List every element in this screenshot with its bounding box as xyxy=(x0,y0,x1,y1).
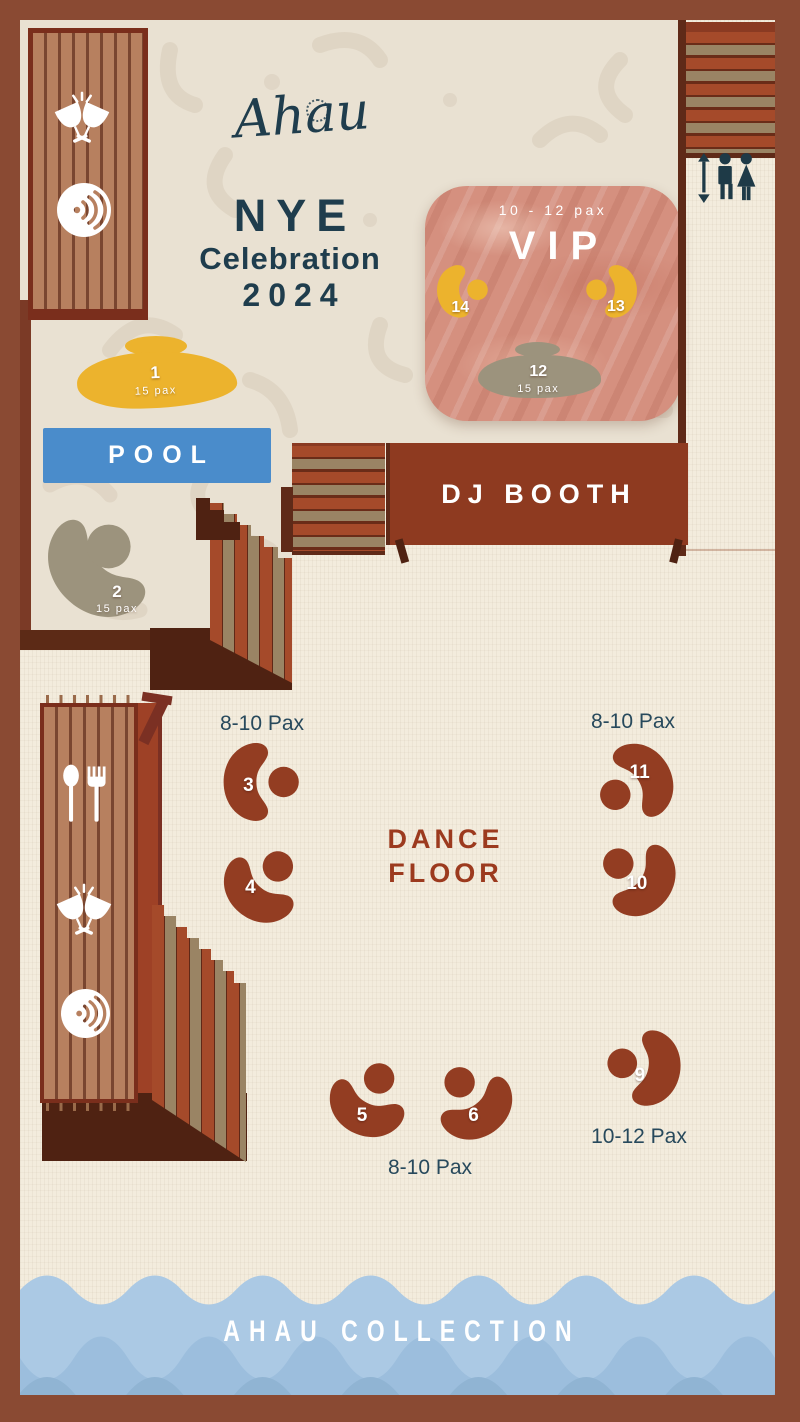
table-number: 4 xyxy=(245,877,256,899)
table-pax: 15 pax xyxy=(96,603,138,615)
stairs-top-right xyxy=(683,22,775,158)
table-number: 14 xyxy=(451,299,469,317)
table-2: 2 15 pax xyxy=(48,502,163,617)
zone-label-tables-3-4: 8-10 Pax xyxy=(187,712,337,736)
zone-label-table-9: 10-12 Pax xyxy=(564,1125,714,1149)
table-pax: 15 pax xyxy=(135,385,177,398)
pool-label: POOL xyxy=(99,441,215,470)
table-14: 14 xyxy=(436,264,490,318)
stairs-dj-booth xyxy=(292,443,385,555)
logo-badge-icon xyxy=(306,99,329,122)
table-number: 9 xyxy=(635,1065,646,1087)
venue-logo: Ahau xyxy=(232,82,366,151)
table-number: 6 xyxy=(468,1105,479,1127)
table-number: 10 xyxy=(626,873,647,895)
event-title: NYE xyxy=(140,190,440,242)
event-year: 2024 xyxy=(140,277,440,314)
table-number: 13 xyxy=(607,298,625,316)
pool-room-wall xyxy=(20,630,160,650)
cheers-icon xyxy=(55,881,113,943)
table-pax: 15 pax xyxy=(517,383,559,395)
table-4: 4 xyxy=(224,843,304,923)
dance-floor-label: DANCE FLOOR xyxy=(373,822,518,890)
zone-label-tables-10-11: 8-10 Pax xyxy=(558,710,708,734)
dj-booth-label: DJ BOOTH xyxy=(441,479,637,510)
pool-room-left-wall xyxy=(20,300,31,650)
table-number: 2 xyxy=(112,582,121,602)
table-number: 12 xyxy=(529,363,547,381)
table-number: 5 xyxy=(357,1105,368,1127)
table-10: 10 xyxy=(596,836,676,916)
cutlery-icon xyxy=(60,763,106,827)
wall-stub xyxy=(281,487,293,552)
vip-label: VIP xyxy=(425,224,681,269)
table-13: 13 xyxy=(584,264,638,318)
table-number: 1 xyxy=(150,363,160,383)
table-number: 11 xyxy=(630,762,650,784)
table-11: 11 xyxy=(594,744,674,824)
zone-label-tables-5-6: 8-10 Pax xyxy=(355,1156,505,1180)
corridor-end-line xyxy=(686,549,775,551)
floorplan-canvas: 10 - 12 pax VIP DJ BOOTH POOL 1 15 pax 1… xyxy=(0,0,800,1422)
speaker-icon xyxy=(57,183,111,237)
table-number: 3 xyxy=(243,775,254,797)
table-5: 5 xyxy=(330,1058,410,1138)
table-6: 6 xyxy=(432,1060,512,1140)
event-subtitle: Celebration xyxy=(140,241,440,277)
cheers-icon xyxy=(53,89,111,151)
speaker-icon xyxy=(61,989,110,1038)
vip-capacity-label: 10 - 12 pax xyxy=(425,202,681,218)
pool-area: POOL xyxy=(43,428,271,483)
dj-booth: DJ BOOTH xyxy=(386,443,688,545)
restroom-icon xyxy=(696,152,758,204)
table-9: 9 xyxy=(604,1028,682,1106)
footer-brand-label: AHAU COLLECTION xyxy=(20,1314,775,1349)
deck-panel-top xyxy=(28,28,148,320)
table-3: 3 xyxy=(222,742,302,822)
table-12: 12 15 pax xyxy=(478,355,601,398)
deck-panel-mid xyxy=(40,703,138,1103)
